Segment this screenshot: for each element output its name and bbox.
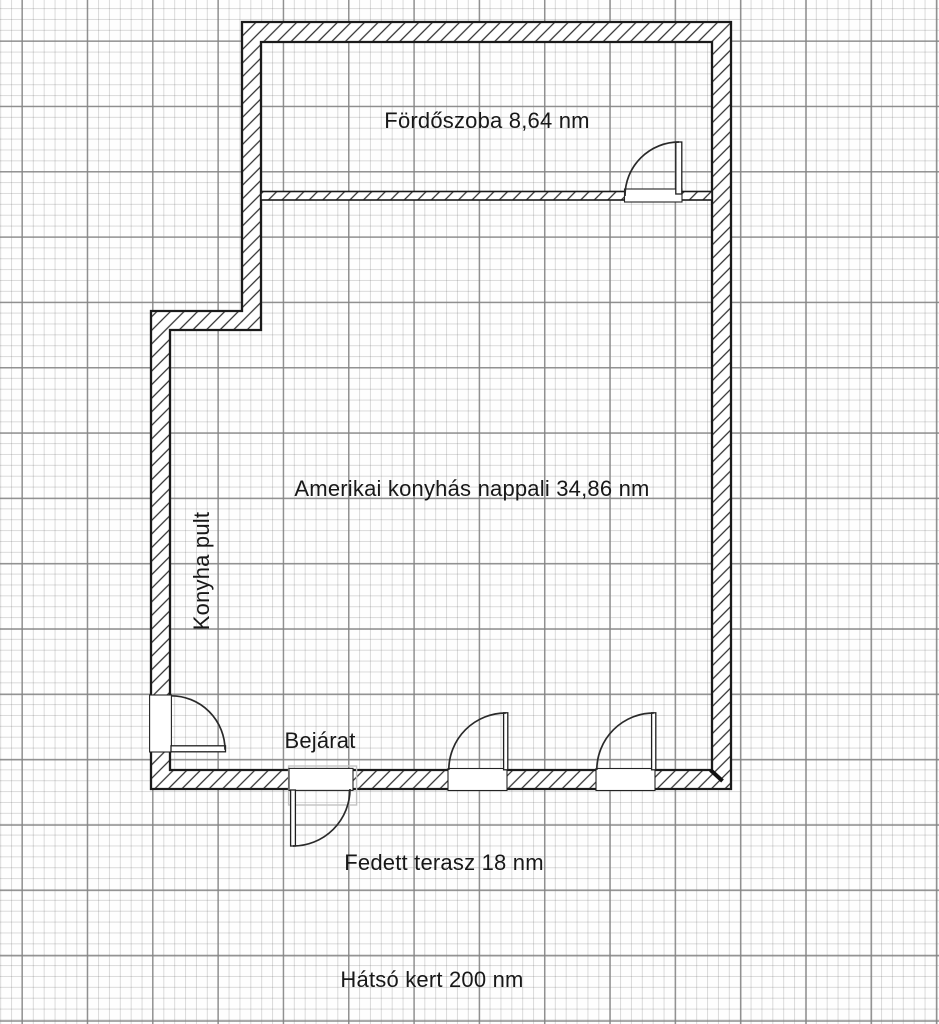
room-label-terrace: Fedett terasz 18 nm xyxy=(344,852,543,874)
graph-paper: Fördőszoba 8,64 nm Amerikai konyhás napp… xyxy=(0,0,939,1024)
exterior-walls xyxy=(151,22,731,789)
terrace-door-left-swing-arc xyxy=(449,713,506,770)
kitchen-side-door-leaf xyxy=(171,746,226,752)
bathroom-door-swing-arc xyxy=(625,142,679,196)
kitchen-side-door-opening xyxy=(150,695,172,752)
bathroom-door-opening xyxy=(625,189,683,202)
label-kitchen-counter: Konyha pult xyxy=(191,512,213,630)
terrace-door-right-leaf xyxy=(652,713,656,770)
kitchen-side-door-swing-arc xyxy=(171,696,225,750)
entrance-door-opening xyxy=(289,768,353,790)
terrace-door-left-opening xyxy=(448,769,507,791)
bathroom-door-leaf xyxy=(676,142,682,194)
room-label-garden: Hátsó kert 200 nm xyxy=(340,969,523,991)
terrace-door-right-opening xyxy=(596,769,655,791)
terrace-door-right-swing-arc xyxy=(597,713,654,770)
room-label-bathroom: Fördőszoba 8,64 nm xyxy=(384,110,589,132)
label-entrance: Bejárat xyxy=(284,730,355,752)
entrance-door-leaf xyxy=(291,790,296,846)
terrace-door-left-leaf xyxy=(504,713,508,770)
entrance-door-swing-arc xyxy=(293,789,350,846)
room-label-living-room: Amerikai konyhás nappali 34,86 nm xyxy=(294,478,649,500)
